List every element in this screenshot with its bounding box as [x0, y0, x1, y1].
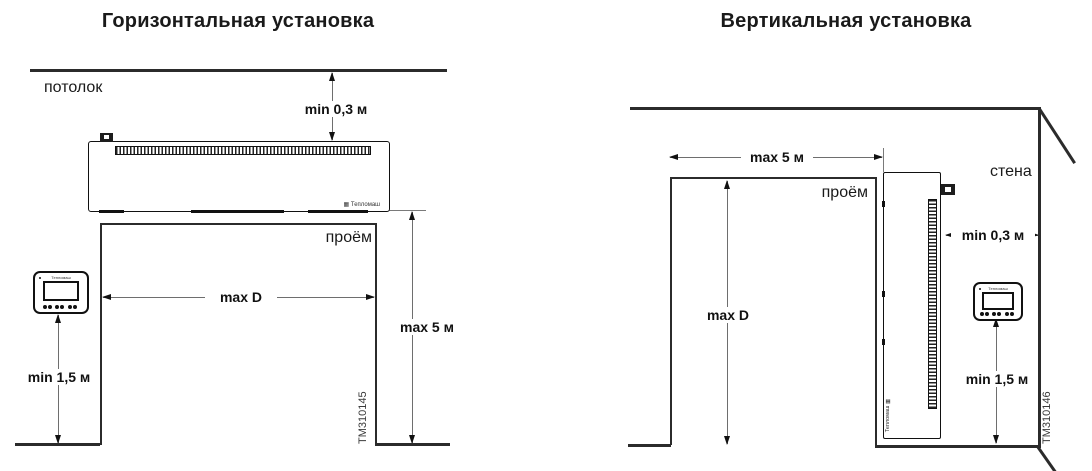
unit-foot — [308, 210, 368, 213]
right-opening-height-label: max D — [692, 307, 764, 323]
ceiling-line — [30, 69, 447, 72]
left-height-reference-line — [388, 210, 426, 211]
mounting-bracket-icon — [941, 184, 955, 195]
unit-foot — [191, 210, 284, 213]
brand-text: Тепломаш — [351, 202, 380, 208]
remote-screen — [982, 292, 1014, 310]
mounting-bracket-icon — [100, 133, 113, 142]
air-curtain-unit-vertical: Тепломаш ▦ — [883, 172, 941, 439]
right-wall-gap-label: min 0,3 м — [951, 227, 1035, 243]
right-opening-label: проём — [800, 184, 868, 202]
air-intake-grille — [928, 199, 937, 409]
right-diagram-title: Вертикальная установка — [696, 10, 996, 33]
left-opening-label: проём — [300, 229, 372, 247]
left-ceiling-gap-label: min 0,3 м — [297, 101, 375, 117]
outlet-tick — [882, 291, 885, 297]
left-diagram-title: Горизонтальная установка — [78, 10, 398, 33]
air-intake-grille — [115, 146, 371, 155]
left-opening-width-label: max D — [205, 289, 277, 305]
remote-control: Тепломаш — [33, 271, 89, 314]
brand-logo: Тепломаш ▦ — [885, 398, 891, 432]
brand-text: Тепломаш — [885, 405, 891, 432]
outlet-tick — [882, 339, 885, 345]
outlet-tick — [882, 201, 885, 207]
left-floor-right — [375, 443, 450, 446]
left-opening-height-label: max 5 м — [395, 319, 459, 335]
right-doorway-top — [670, 177, 877, 179]
remote-control: Тепломаш — [973, 282, 1023, 321]
ceiling-label: потолок — [44, 79, 102, 97]
left-remote-height-label: min 1,5 м — [24, 369, 94, 385]
right-doorway-right-edge — [875, 177, 877, 445]
right-floor-left — [628, 444, 671, 447]
left-doorway-right-wall — [375, 223, 377, 445]
installation-diagram: Горизонтальная установка потолок min 0,3… — [0, 0, 1092, 471]
left-doorway-left-wall — [100, 223, 102, 445]
right-width-reference-line — [883, 148, 884, 172]
air-curtain-unit-horizontal: ▦ Тепломаш — [88, 141, 390, 212]
right-floor-right — [875, 445, 1039, 448]
right-top-wall-line — [630, 107, 1040, 110]
wall-label: стена — [990, 163, 1032, 181]
right-doorway-left-wall — [670, 177, 672, 445]
remote-screen — [43, 281, 79, 301]
unit-foot — [99, 210, 124, 213]
remote-buttons — [35, 305, 87, 309]
right-opening-width-label: max 5 м — [741, 149, 813, 165]
brand-logo: ▦ Тепломаш — [344, 201, 380, 208]
left-floor-left — [15, 443, 100, 446]
remote-brand-label: Тепломаш — [35, 275, 87, 280]
right-wall-break-bottom — [1037, 446, 1065, 471]
right-wall-break-top — [1037, 107, 1075, 164]
right-remote-height-label: min 1,5 м — [962, 371, 1032, 387]
remote-buttons — [975, 312, 1021, 316]
remote-brand-label: Тепломаш — [975, 286, 1021, 291]
left-figure-id: TM310145 — [357, 390, 369, 444]
right-figure-id: TM310146 — [1041, 390, 1053, 444]
left-doorway-top — [100, 223, 377, 225]
